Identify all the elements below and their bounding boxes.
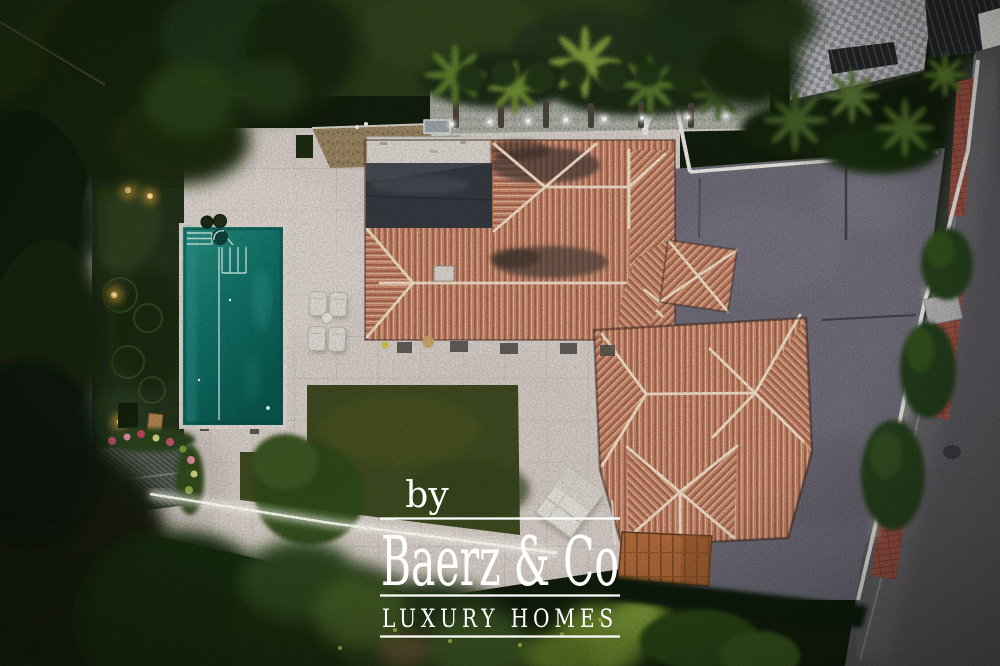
watermark-by: by <box>405 475 449 516</box>
watermark-tagline: LUXURY HOMES <box>382 604 618 633</box>
aerial-photo-scene: by Baerz & Co LUXURY HOMES <box>0 0 1000 666</box>
aerial-photo: by Baerz & Co LUXURY HOMES <box>0 0 1000 666</box>
watermark-brand: Baerz & Co <box>381 523 619 602</box>
